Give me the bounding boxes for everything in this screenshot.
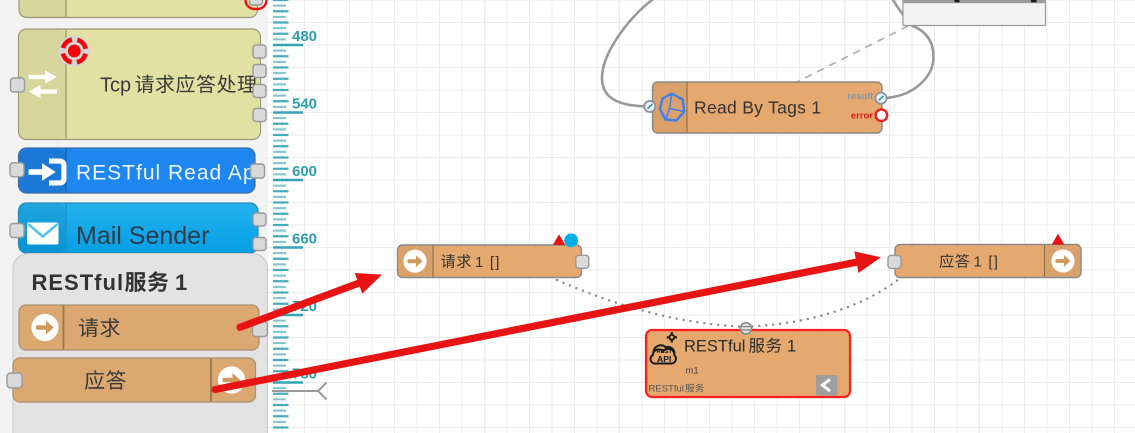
svg-text:RESTful: RESTful [32, 270, 125, 295]
svg-text:API: API [657, 354, 671, 364]
svg-text:1: 1 [787, 338, 796, 356]
svg-text:1 []: 1 [] [475, 254, 501, 271]
svg-text:1 []: 1 [] [974, 254, 1000, 271]
svg-text:RESTful: RESTful [649, 384, 684, 395]
svg-text:480: 480 [292, 28, 317, 45]
svg-text:RESTful: RESTful [684, 338, 745, 356]
svg-text:Mail Sender: Mail Sender [76, 222, 209, 250]
svg-text:540: 540 [292, 96, 317, 113]
svg-text:Tcp: Tcp [100, 75, 131, 97]
svg-text:600: 600 [292, 163, 317, 180]
svg-text:1: 1 [175, 270, 187, 295]
svg-text:660: 660 [292, 231, 317, 248]
svg-text:Read By Tags 1: Read By Tags 1 [694, 97, 821, 117]
svg-text:result: result [847, 91, 874, 102]
svg-text:RESTful Read Api: RESTful Read Api [76, 161, 261, 184]
svg-text:m1: m1 [686, 366, 699, 377]
svg-text:error: error [851, 111, 873, 122]
